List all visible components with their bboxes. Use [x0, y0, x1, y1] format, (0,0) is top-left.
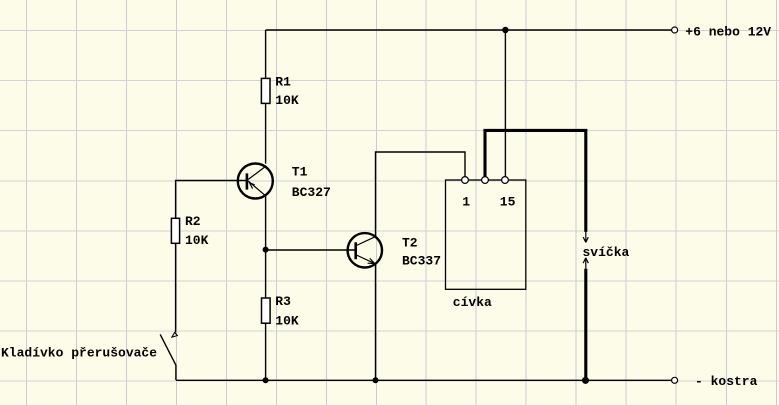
svg-text:cívka: cívka [453, 295, 492, 310]
svg-text:- kostra: - kostra [695, 374, 758, 389]
svg-text:T1: T1 [292, 164, 308, 179]
svg-text:BC327: BC327 [292, 185, 331, 200]
svg-text:10K: 10K [275, 313, 299, 328]
svg-text:1: 1 [462, 195, 470, 210]
svg-text:T2: T2 [402, 235, 418, 250]
svg-text:svíčka: svíčka [583, 245, 630, 260]
svg-text:R1: R1 [275, 75, 291, 90]
svg-text:BC337: BC337 [402, 254, 441, 269]
svg-text:R3: R3 [275, 294, 291, 309]
svg-text:10K: 10K [275, 93, 299, 108]
svg-text:15: 15 [500, 195, 516, 210]
svg-text:Kladívko přerušovače: Kladívko přerušovače [1, 346, 157, 361]
svg-text:10K: 10K [185, 233, 209, 248]
svg-text:R2: R2 [185, 214, 201, 229]
svg-text:+6 nebo 12V: +6 nebo 12V [685, 24, 771, 39]
